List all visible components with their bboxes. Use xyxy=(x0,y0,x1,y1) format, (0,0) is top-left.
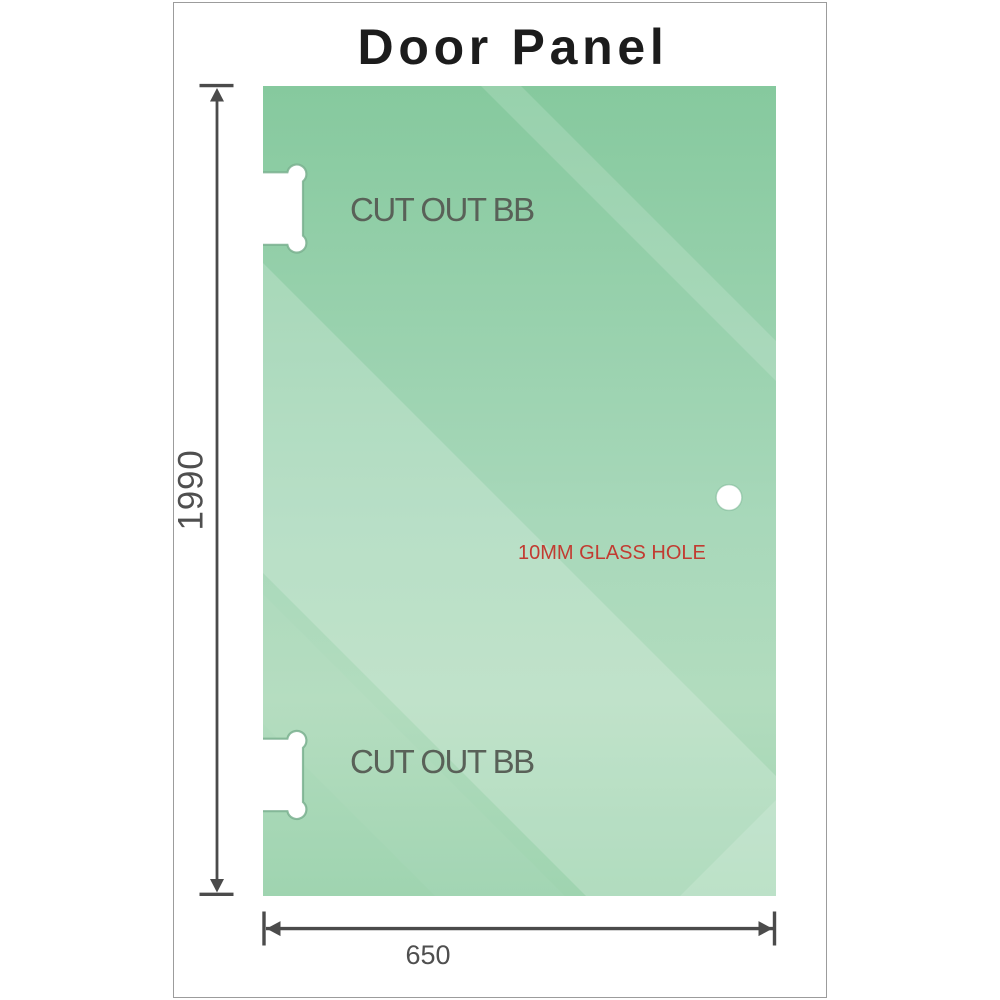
svg-text:CUT OUT BB: CUT OUT BB xyxy=(350,191,534,228)
svg-text:Door Panel: Door Panel xyxy=(358,19,669,75)
svg-text:10MM GLASS HOLE: 10MM GLASS HOLE xyxy=(518,542,706,564)
svg-text:CUT OUT BB: CUT OUT BB xyxy=(350,743,534,780)
svg-text:650: 650 xyxy=(405,940,450,970)
svg-text:1990: 1990 xyxy=(172,449,211,530)
